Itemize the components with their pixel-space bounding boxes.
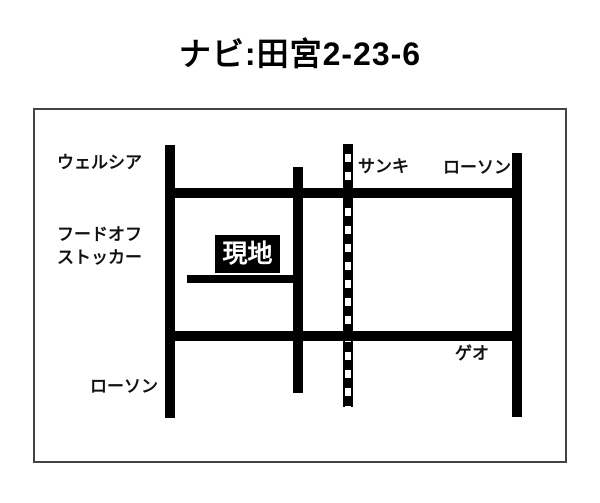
label-food-off-stocker: フードオフ ストッカー xyxy=(57,224,142,270)
railway-line xyxy=(343,144,353,407)
road-vertical-right xyxy=(512,153,522,417)
road-horizontal-top xyxy=(165,188,522,198)
label-lawson-bottom-left: ローソン xyxy=(90,376,158,399)
road-horizontal-bottom xyxy=(165,331,522,341)
page-title: ナビ:田宮2-23-6 xyxy=(0,38,600,70)
map-frame: 現地 ウェルシア フードオフ ストッカー ローソン サンキ ローソン ゲオ xyxy=(33,108,567,463)
destination-marker: 現地 xyxy=(215,235,280,273)
label-food-off-stocker-line1: フードオフ xyxy=(57,224,142,247)
label-lawson-top-right: ローソン xyxy=(443,157,511,180)
label-sanki: サンキ xyxy=(358,156,409,179)
label-geo: ゲオ xyxy=(455,343,489,366)
label-welcia: ウェルシア xyxy=(57,152,142,175)
road-vertical-left xyxy=(165,145,175,418)
destination-access-road xyxy=(187,275,303,283)
label-food-off-stocker-line2: ストッカー xyxy=(57,247,142,270)
navigation-map-page: ナビ:田宮2-23-6 現地 ウェルシア フードオフ ストッカー ローソン サン… xyxy=(0,0,600,503)
